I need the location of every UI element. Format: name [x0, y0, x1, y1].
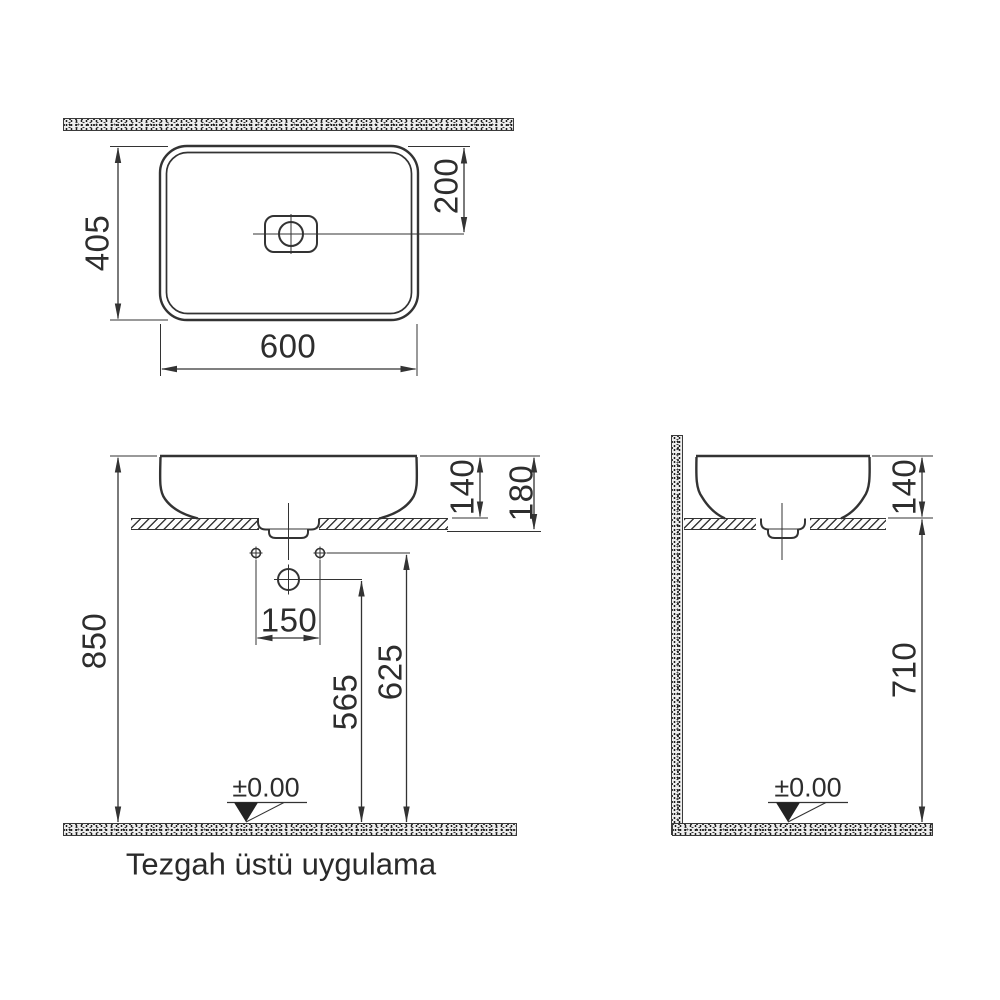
arrowhead: [403, 554, 409, 570]
dim-label-counter-710: 710: [888, 642, 921, 699]
dim-label-depth-405: 405: [81, 215, 114, 272]
tap-hole: [253, 214, 464, 254]
arrowhead: [115, 807, 121, 823]
dim-label-rim-counter-180: 180: [505, 465, 538, 522]
arrowhead: [403, 807, 409, 823]
datum-label-side: ±0.00: [774, 775, 841, 802]
drawing-caption: Tezgah üstü uygulama: [126, 849, 436, 880]
technical-drawing: 405 600 200 850 140 180 150 565 625 ±0.0…: [0, 0, 1000, 1000]
side-view-basin-outline: [696, 456, 870, 519]
arrowhead: [115, 457, 121, 473]
datum-label-front: ±0.00: [232, 775, 299, 802]
dim-label-holes-625: 625: [374, 644, 407, 701]
fixing-hole-left: [250, 547, 263, 560]
datum-triangle: [234, 803, 258, 823]
supply-hole: [274, 565, 362, 595]
arrowhead: [161, 366, 177, 372]
arrowhead: [115, 147, 121, 163]
dim-label-supply-565: 565: [329, 674, 362, 731]
arrowhead: [919, 807, 925, 823]
top-view-basin-outline: [160, 146, 418, 320]
arrowhead: [115, 304, 121, 320]
arrowhead: [358, 581, 364, 597]
dim-label-width-600: 600: [260, 330, 317, 363]
datum-symbol-front: [227, 803, 307, 823]
arrowhead: [461, 217, 467, 233]
dim-label-total-height-850: 850: [78, 613, 111, 670]
arrowhead: [919, 519, 925, 535]
datum-symbol-side: [768, 803, 848, 823]
arrowhead: [401, 366, 417, 372]
dim-label-tap-offset-200: 200: [430, 158, 463, 215]
arrowhead: [358, 807, 364, 823]
fixing-hole-right: [314, 547, 327, 560]
dim-label-rim-140-side: 140: [888, 459, 921, 516]
side-drain-outline: [761, 519, 805, 539]
datum-triangle: [776, 803, 800, 823]
dim-label-rim-140-front: 140: [446, 459, 479, 516]
dim-label-hole-spacing-150: 150: [261, 604, 318, 637]
dimension-850: [110, 456, 157, 823]
